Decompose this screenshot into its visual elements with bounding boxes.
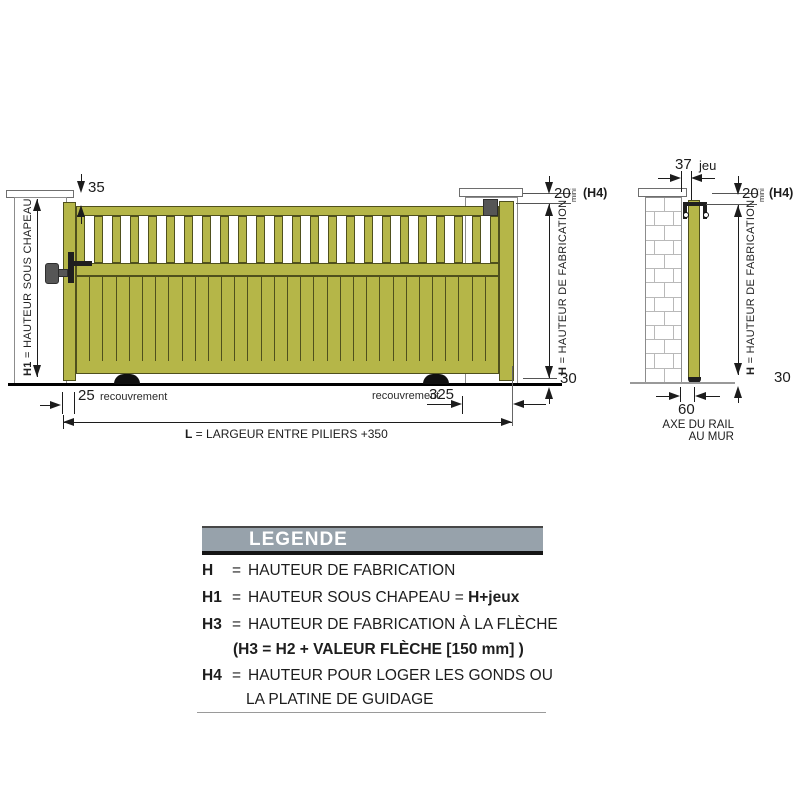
dim-60-value: 60 [678, 402, 695, 417]
brick-joint [664, 226, 665, 239]
tick-37-left [681, 171, 682, 192]
dim-37-arrow-right [691, 174, 702, 182]
gate-board [90, 277, 103, 361]
gate-baluster [328, 216, 337, 263]
brick-row [646, 298, 681, 312]
brick-joint [664, 198, 665, 211]
side-pillar-cap [638, 188, 687, 197]
gate-board [275, 277, 288, 361]
brick-row [646, 241, 681, 255]
dim-325-stem-right [524, 404, 546, 405]
dim-L-label: L = LARGEUR ENTRE PILIERS +350 [185, 427, 388, 441]
legend-title: LEGENDE [202, 528, 543, 551]
gate-top-rail [76, 206, 499, 216]
gate-board [433, 277, 446, 361]
guide-plate-icon [483, 199, 498, 216]
brick-joint [673, 354, 674, 367]
brick-row [646, 255, 681, 269]
gate-board-row [77, 277, 498, 361]
gate-wheel-left-icon [114, 374, 140, 384]
gate-baluster [400, 216, 409, 263]
dim-h-label-front: H = HAUTEUR DE FABRICATION [556, 207, 570, 375]
tick-25-left [62, 392, 63, 414]
brick-row [646, 369, 681, 383]
side-dim-20-arrow [734, 183, 742, 195]
gate-board [380, 277, 393, 361]
gate-baluster [184, 216, 193, 263]
gate-baluster [112, 216, 121, 263]
gate-baluster [256, 216, 265, 263]
dim-h4-ref: (H4) [583, 187, 607, 200]
gate-board [486, 277, 498, 361]
dim-60-arrow-left [669, 392, 680, 400]
dim-60-stem-left [656, 396, 670, 397]
brick-joint [664, 283, 665, 296]
legend-row-h3: H3=HAUTEUR DE FABRICATION À LA FLÈCHE [202, 616, 558, 634]
dim-60-stem-right [706, 396, 720, 397]
brick-joint [664, 255, 665, 268]
gate-board [459, 277, 472, 361]
gate-baluster [454, 216, 463, 263]
right-pillar-cap [459, 188, 523, 197]
gate-board [169, 277, 182, 361]
rail-axis-label-line2: AU MUR [642, 431, 734, 443]
brick-joint [664, 312, 665, 325]
dim-h-arrow-bottom-side [734, 363, 742, 375]
guide-roller-left-icon [683, 212, 689, 218]
legend-term: H1 [202, 589, 232, 607]
legend-row-h4: H4=HAUTEUR POUR LOGER LES GONDS OU [202, 667, 553, 685]
dim-37-arrow-left [670, 174, 681, 182]
dim-25-value: 25 [78, 388, 95, 403]
brick-joint [654, 269, 655, 282]
legend-eq: = [232, 562, 248, 580]
side-dim-h4-ref: (H4) [769, 187, 793, 200]
brick-joint [673, 269, 674, 282]
rail-axis-label-line1: AXE DU RAIL [642, 419, 734, 431]
gate-board [288, 277, 301, 361]
side-ground-line [630, 382, 735, 384]
lock-stem [58, 269, 68, 277]
dim-L-arrow-right [501, 418, 512, 426]
gate-middle-rail [76, 263, 499, 276]
dim-30-stem-front [549, 397, 550, 404]
handle-vertical-bar-icon [68, 252, 74, 283]
gate-baluster [490, 216, 499, 263]
dim-h-line-side [738, 205, 739, 375]
gate-baluster [382, 216, 391, 263]
brick-joint [654, 241, 655, 254]
dim-325-arrow-left [451, 400, 462, 408]
brick-joint [673, 298, 674, 311]
brick-joint [664, 369, 665, 382]
gate-board [103, 277, 116, 361]
gate-board [407, 277, 420, 361]
legend-text-bold: (H3 = H2 + VALEUR FLÈCHE [150 mm] ) [233, 641, 524, 658]
brick-row [646, 340, 681, 354]
tick-325 [462, 396, 463, 414]
dim-30-stem-side [738, 396, 739, 403]
gate-board [196, 277, 209, 361]
brick-joint [654, 326, 655, 339]
legend-term: H3 [202, 616, 232, 634]
dim-L-line [63, 422, 512, 423]
dim-h1-line [37, 199, 38, 377]
legend-text: HAUTEUR DE FABRICATION À LA FLÈCHE [248, 616, 558, 633]
ext-line-gate-bottom [523, 378, 557, 379]
legend-term: H [202, 562, 232, 580]
gate-board [222, 277, 235, 361]
dim-h1-label: H1 = HAUTEUR SOUS CHAPEAU [21, 202, 35, 376]
technical-drawing-gate: H1 = HAUTEUR SOUS CHAPEAU 35 20 mini (H4… [0, 0, 800, 800]
gate-baluster [202, 216, 211, 263]
gate-board [143, 277, 156, 361]
gate-board [314, 277, 327, 361]
gate-baluster [274, 216, 283, 263]
dim-L-arrow-left [63, 418, 74, 426]
dim-37-label: jeu [699, 159, 716, 172]
brick-row [646, 354, 681, 368]
gate-bottom-panel [76, 276, 499, 374]
gate-baluster [436, 216, 445, 263]
dim-h-arrow-bottom-front [545, 366, 553, 378]
gate-board [394, 277, 407, 361]
dim-35-arrow-down [77, 181, 85, 193]
gate-board [262, 277, 275, 361]
gate-board [130, 277, 143, 361]
gate-board [235, 277, 248, 361]
brick-joint [673, 212, 674, 225]
gate-board [473, 277, 486, 361]
gate-left-stile [63, 202, 76, 381]
gate-board [328, 277, 341, 361]
gate-baluster [472, 216, 481, 263]
ground-rail-line [8, 383, 562, 386]
dim-37-value: 37 [675, 157, 692, 172]
legend-eq: = [232, 616, 248, 634]
legend-text: HAUTEUR SOUS CHAPEAU = [248, 589, 468, 606]
dim-h-line-front [549, 204, 550, 378]
dim-37-stem-right [702, 178, 715, 179]
guide-roller-right-icon [703, 212, 709, 218]
brick-joint [673, 326, 674, 339]
handle-horizontal-bar-icon [70, 261, 92, 266]
brick-joint [654, 298, 655, 311]
legend-header-bar: LEGENDE [202, 526, 543, 555]
dim-35-stem-bottom [81, 216, 82, 224]
tick-25-right [74, 392, 75, 414]
dim-20-arrow [545, 182, 553, 194]
dim-35-value: 35 [88, 180, 105, 195]
dim-25-arrow [50, 401, 61, 409]
brick-row [646, 326, 681, 340]
gate-board [248, 277, 261, 361]
gate-board [183, 277, 196, 361]
dim-30-value-front: 30 [560, 371, 577, 386]
rail-axis-label: AXE DU RAIL AU MUR [642, 419, 734, 443]
brick-row [646, 226, 681, 240]
gate-board [367, 277, 380, 361]
gate-baluster [130, 216, 139, 263]
gate-board [77, 277, 90, 361]
legend-eq: = [232, 667, 248, 685]
side-pillar-brick [645, 197, 682, 384]
side-gate-edge [688, 200, 700, 378]
legend-text: HAUTEUR POUR LOGER LES GONDS OU [248, 667, 553, 684]
legend-row-h: H=HAUTEUR DE FABRICATION [202, 562, 455, 580]
legend-eq: = [232, 589, 248, 607]
lock-knob-icon [45, 263, 59, 284]
dim-h-arrow-top-side [734, 205, 742, 217]
legend-text: HAUTEUR DE FABRICATION [248, 562, 455, 579]
gate-baluster [310, 216, 319, 263]
legend-term: H4 [202, 667, 232, 685]
legend-text: LA PLATINE DE GUIDAGE [246, 691, 434, 708]
gate-wheel-right-icon [423, 374, 449, 384]
gate-board [420, 277, 433, 361]
gate-baluster-row [76, 216, 499, 263]
gate-board [301, 277, 314, 361]
legend-bottom-rule [197, 712, 546, 713]
legend-row-h4-cont: LA PLATINE DE GUIDAGE [246, 691, 434, 709]
gate-baluster [292, 216, 301, 263]
dim-60-arrow-right [695, 392, 706, 400]
dim-30-value-side: 30 [774, 370, 791, 385]
dim-25-label: recouvrement [100, 392, 167, 403]
dim-325-arrow-right [513, 400, 524, 408]
dim-20-unit: mini [569, 184, 578, 202]
gate-board [209, 277, 222, 361]
brick-joint [673, 241, 674, 254]
gate-baluster [94, 216, 103, 263]
tick-60-left [680, 387, 681, 402]
brick-joint [664, 340, 665, 353]
legend-row-h3-formula: (H3 = H2 + VALEUR FLÈCHE [150 mm] ) [233, 641, 524, 659]
gate-baluster [238, 216, 247, 263]
gate-board [354, 277, 367, 361]
legend-text-bold: H+jeux [468, 589, 519, 606]
gate-board [341, 277, 354, 361]
gate-board [446, 277, 459, 361]
gate-baluster [220, 216, 229, 263]
gate-baluster [418, 216, 427, 263]
brick-row [646, 312, 681, 326]
brick-row [646, 283, 681, 297]
gate-baluster [166, 216, 175, 263]
dim-h-arrow-top-front [545, 204, 553, 216]
gate-baluster [148, 216, 157, 263]
gate-baluster [364, 216, 373, 263]
brick-row [646, 269, 681, 283]
ref-line-gate-end [512, 366, 513, 426]
brick-joint [654, 212, 655, 225]
gate-baluster [346, 216, 355, 263]
gate-right-stile [499, 201, 514, 381]
gate-board [117, 277, 130, 361]
brick-row [646, 198, 681, 212]
side-dim-20-unit: mini [757, 184, 766, 202]
legend-row-h1: H1=HAUTEUR SOUS CHAPEAU = H+jeux [202, 589, 519, 607]
dim-h-label-side: H = HAUTEUR DE FABRICATION [744, 207, 758, 375]
dim-325-stem-left [427, 404, 453, 405]
gate-board [156, 277, 169, 361]
brick-row [646, 212, 681, 226]
brick-joint [654, 354, 655, 367]
